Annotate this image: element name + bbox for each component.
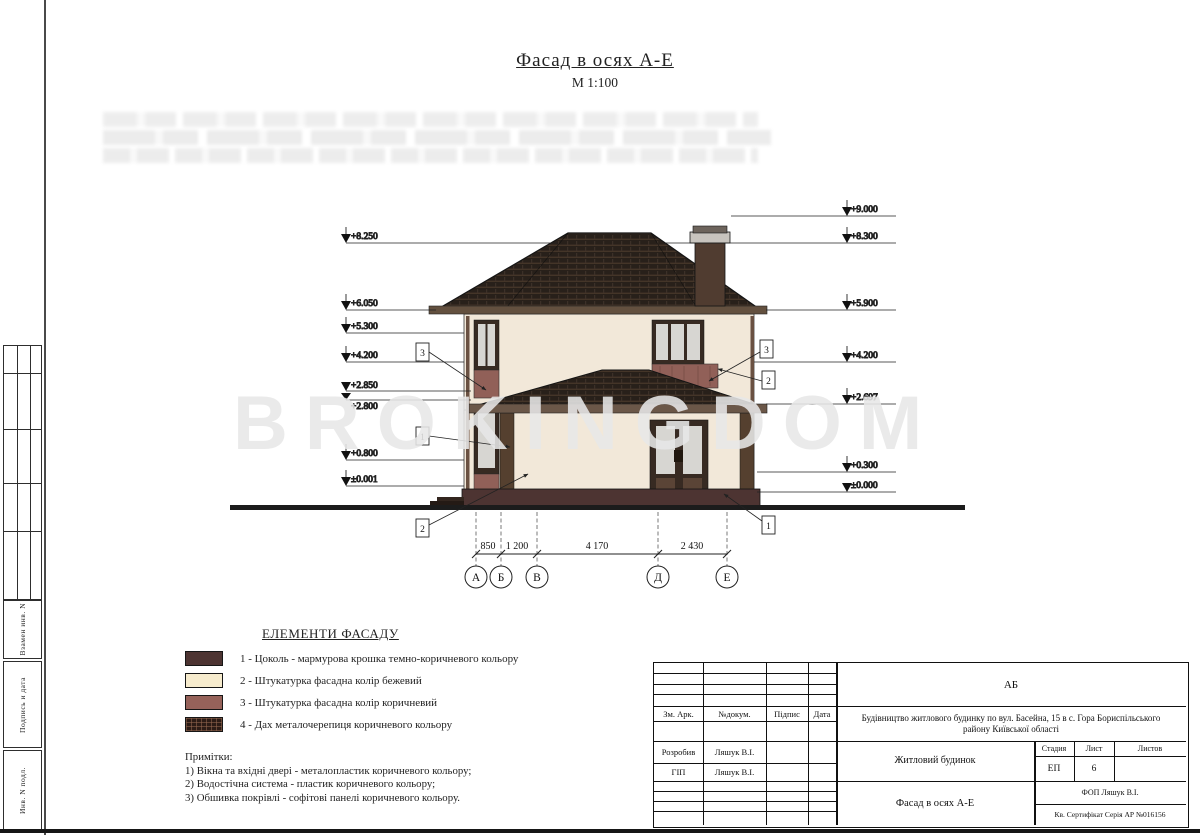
notes-heading: Примітки:	[185, 751, 471, 765]
legend-label: 1 - Цоколь - мармурова крошка темно-кори…	[240, 653, 518, 665]
stamp-box-vzamen: Взамен инв. N	[3, 600, 42, 659]
stamp-box-inv: Инв. N подл.	[3, 750, 42, 830]
drawing-sheet: Взамен инв. N Подпись и дата Инв. N подл…	[0, 0, 1200, 835]
tb-sheet-label: Лист	[1074, 741, 1114, 756]
tb-drawing-title: Фасад в осях А-Е	[836, 781, 1034, 825]
grid-line	[17, 346, 18, 599]
window-pane	[656, 324, 668, 360]
tb-header-signature: Підпис	[766, 706, 808, 721]
tb-header-docnum: №докум.	[703, 706, 766, 721]
legend-item: 3 - Штукатурка фасадна колір коричневий	[185, 695, 565, 710]
callout-number: 1	[766, 522, 771, 532]
dimension-value: 4 170	[586, 541, 609, 552]
frame-bottom-line	[0, 829, 1200, 833]
note-line: 2) Водостічна система - пластик коричнев…	[185, 778, 471, 792]
callout-number: 3	[420, 349, 425, 359]
tb-header-zm-ark: Зм. Арк.	[654, 706, 703, 721]
legend-label: 3 - Штукатурка фасадна колір коричневий	[240, 697, 437, 709]
elevation-mark: ±0.001	[341, 470, 464, 486]
plinth	[462, 489, 760, 506]
watermark: BROKINGDOM	[233, 386, 973, 462]
chimney-top	[693, 226, 727, 233]
tb-stage-value: ЕП	[1034, 756, 1074, 781]
tb-line	[654, 694, 836, 695]
chimney-cap	[690, 232, 730, 243]
main-fascia	[429, 306, 767, 314]
note-line: 3) Обшивка покрівлі - софітові панелі ко…	[185, 792, 471, 806]
tb-header-date: Дата	[808, 706, 836, 721]
tb-line	[654, 721, 836, 722]
axis-label: Д	[654, 572, 662, 584]
note-line: 1) Вікна та вхідні двері - металопластик…	[185, 765, 471, 779]
elevation-mark: +6.050	[341, 294, 436, 310]
elevation-mark: +8.250	[341, 227, 558, 243]
chimney-body	[695, 242, 725, 306]
elevation-mark: +9.000	[731, 200, 896, 216]
tb-sheets-label: Листов	[1114, 741, 1186, 756]
blurred-row	[103, 112, 758, 127]
legend-heading: ЕЛЕМЕНТИ ФАСАДУ	[262, 626, 565, 642]
stamp-label: Подпись и дата	[18, 677, 27, 733]
elevation-mark: +4.200	[341, 346, 464, 362]
blurred-row	[103, 130, 771, 145]
elevation-value: +8.250	[351, 232, 378, 242]
callout-number: 2	[420, 525, 425, 535]
tb-line	[654, 684, 836, 685]
tb-name-developer: Ляшук В.І.	[703, 741, 766, 763]
elevation-value: +4.200	[851, 351, 878, 361]
color-swatch-brown-plaster	[185, 695, 223, 710]
color-swatch-beige-plaster	[185, 673, 223, 688]
dimension-value: 850	[481, 541, 496, 552]
axis-extension-lines	[476, 512, 727, 566]
stamp-revision-grid	[3, 345, 42, 600]
legend-item: 2 - Штукатурка фасадна колір бежевий	[185, 673, 565, 688]
drawing-scale: М 1:100	[430, 75, 760, 91]
dimension-chain: 850 1 200 4 170 2 430 А Б В Д Е	[465, 512, 738, 588]
callout-number: 3	[764, 346, 769, 356]
axis-bubbles: А Б В Д Е	[465, 566, 738, 588]
window-pane	[671, 324, 684, 360]
tb-line	[654, 791, 836, 792]
legend-label: 2 - Штукатурка фасадна колір бежевий	[240, 675, 422, 687]
color-swatch-plinth	[185, 651, 223, 666]
axis-label: Б	[498, 572, 505, 584]
blurred-row	[103, 148, 758, 163]
drawing-title: Фасад в осях А-Е	[430, 50, 760, 72]
tb-line	[654, 801, 836, 802]
dimension-value: 2 430	[681, 541, 704, 552]
elevation-value: +6.050	[351, 299, 378, 309]
stamp-label: Взамен инв. N	[18, 603, 27, 656]
tb-role-gip: ГІП	[654, 763, 703, 781]
axis-label: В	[533, 572, 541, 584]
elevation-value: +8.300	[851, 232, 878, 242]
tb-certificate: Кв. Сертифікат Серія АР №016156	[1034, 804, 1186, 825]
elevation-mark: +5.300	[341, 317, 464, 333]
tb-sheet-value: 6	[1074, 756, 1114, 781]
frame-left-line	[44, 0, 46, 835]
grid-line	[30, 346, 31, 599]
legend-item: 4 - Дах металочерепиця коричневого кольо…	[185, 717, 565, 732]
legend-label: 4 - Дах металочерепиця коричневого кольо…	[240, 719, 452, 731]
notes: Примітки: 1) Вікна та вхідні двері - мет…	[185, 751, 471, 805]
grid-line	[4, 429, 41, 430]
tb-code: АБ	[836, 663, 1186, 706]
blurred-band	[103, 112, 758, 170]
tb-line	[654, 673, 836, 674]
stamp-label: Инв. N подл.	[18, 767, 27, 814]
tb-role-developer: Розробив	[654, 741, 703, 763]
elevation-value: +9.000	[851, 205, 878, 215]
title-block: Зм. Арк. №докум. Підпис Дата Розробив Ля…	[653, 662, 1189, 828]
elevation-mark: +5.900	[766, 294, 896, 310]
chimney	[690, 226, 730, 306]
stamp-box-podpis: Подпись и дата	[3, 661, 42, 748]
axis-label: А	[472, 572, 481, 584]
elevation-value: +5.300	[351, 322, 378, 332]
facade-elements-legend: ЕЛЕМЕНТИ ФАСАДУ 1 - Цоколь - мармурова к…	[185, 626, 565, 739]
elevation-value: ±0.001	[351, 475, 378, 485]
tb-name-gip: Ляшук В.І.	[703, 763, 766, 781]
elevation-mark: +4.200	[754, 346, 896, 362]
elevation-value: +5.900	[851, 299, 878, 309]
grid-line	[4, 531, 41, 532]
tb-project: Будівництво житлового будинку по вул. Ба…	[836, 706, 1186, 741]
axis-label: Е	[723, 572, 730, 584]
legend-item: 1 - Цоколь - мармурова крошка темно-кори…	[185, 651, 565, 666]
tb-firm: ФОП Ляшук В.І.	[1034, 781, 1186, 804]
page-title: Фасад в осях А-Е М 1:100	[430, 50, 760, 91]
ground-line	[230, 505, 965, 510]
tb-line	[654, 811, 836, 812]
grid-line	[4, 483, 41, 484]
grid-line	[4, 373, 41, 374]
dimension-value: 1 200	[506, 541, 529, 552]
color-swatch-roof	[185, 717, 223, 732]
elevation-value: +4.200	[351, 351, 378, 361]
tb-object: Житловий будинок	[836, 741, 1034, 781]
tb-stage-label: Стадия	[1034, 741, 1074, 756]
elevation-mark: ±0.000	[757, 481, 896, 492]
elevation-value: ±0.000	[851, 481, 878, 491]
window-pane	[687, 324, 700, 360]
